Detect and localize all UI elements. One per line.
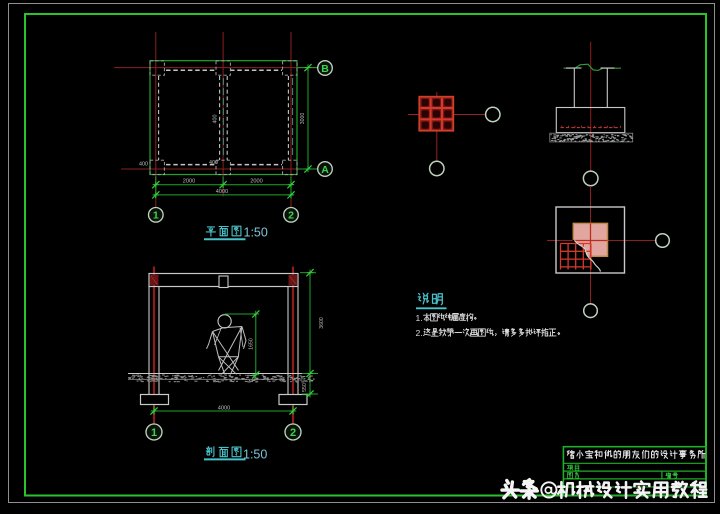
- svg-text:4000: 4000: [218, 405, 230, 411]
- svg-text:1650: 1650: [249, 338, 255, 350]
- svg-text:B: B: [321, 63, 329, 75]
- svg-text:2000: 2000: [250, 179, 262, 185]
- svg-text:550: 550: [302, 383, 308, 392]
- svg-text:1: 1: [151, 427, 157, 439]
- svg-text:2: 2: [290, 427, 296, 439]
- svg-text:4000: 4000: [216, 189, 228, 195]
- svg-text:400: 400: [209, 160, 218, 166]
- svg-text:400: 400: [139, 162, 148, 168]
- svg-text:3000: 3000: [300, 113, 306, 125]
- svg-text:2000: 2000: [183, 179, 195, 185]
- svg-text:1:50: 1:50: [243, 448, 267, 462]
- svg-text:2.: 2.: [416, 328, 423, 338]
- svg-text:1:50: 1:50: [244, 226, 268, 240]
- svg-text:2: 2: [288, 210, 294, 222]
- svg-text:A: A: [321, 164, 329, 176]
- svg-text:3600: 3600: [319, 317, 325, 329]
- svg-text:1: 1: [153, 210, 159, 222]
- svg-text:400: 400: [213, 115, 219, 124]
- svg-text:1.: 1.: [416, 313, 423, 323]
